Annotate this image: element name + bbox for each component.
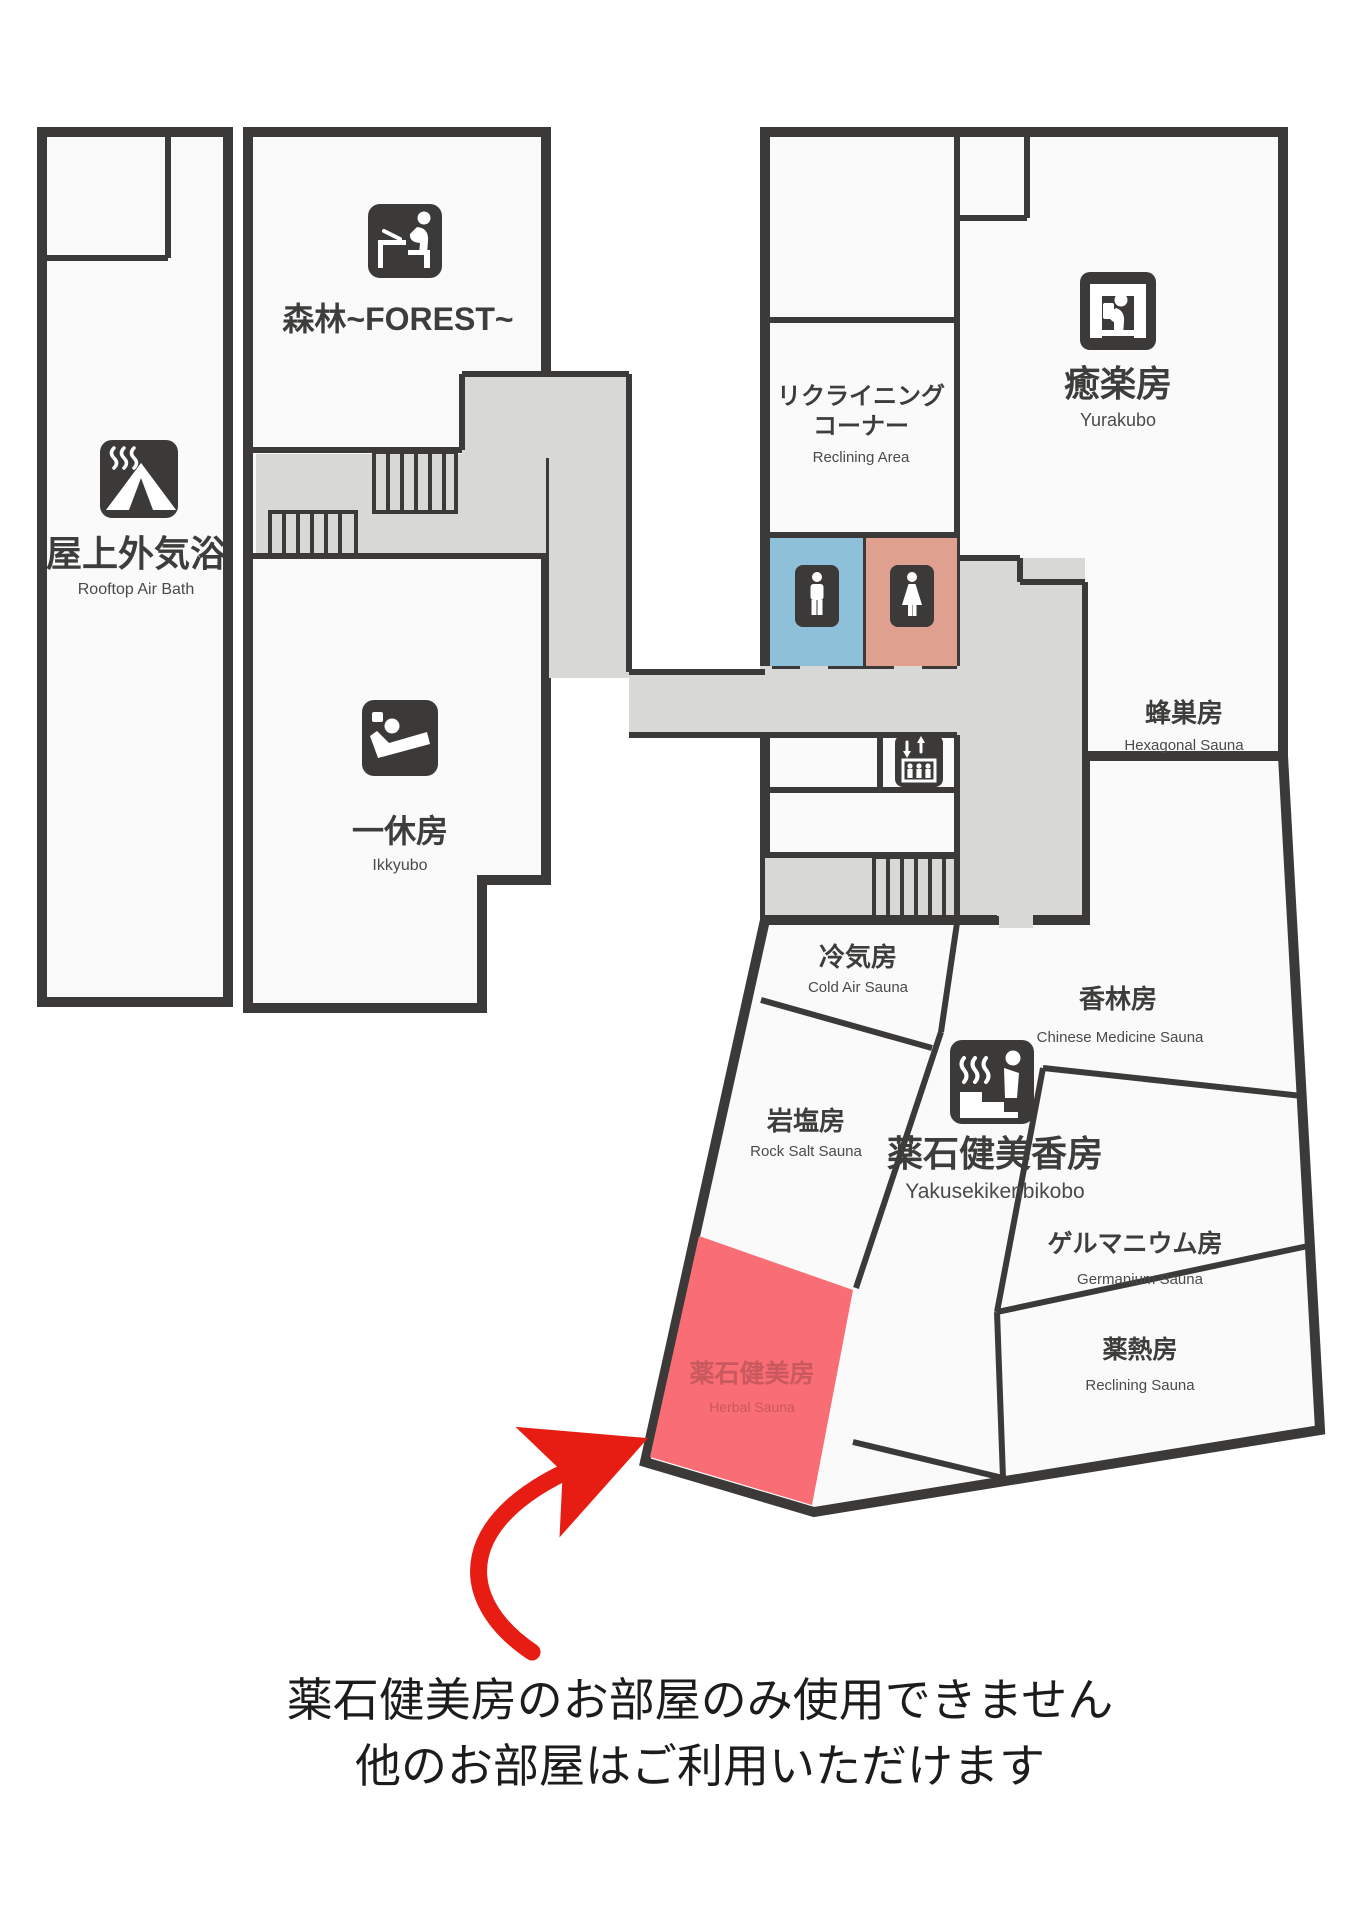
label-hexagonal-en: Hexagonal Sauna [1124, 737, 1244, 754]
label-chinese-medicine-jp: 香林房 [1079, 984, 1157, 1014]
label-ikkyubo-jp: 一休房 [352, 813, 448, 849]
corridor-vertical-connector [549, 452, 629, 678]
corridor-main-east [760, 666, 957, 735]
label-reclining-corner-jp2: コーナー [813, 413, 909, 440]
elevator-icon [895, 735, 943, 787]
reading-person-icon [1080, 272, 1156, 350]
sauna-bench-icon [950, 1040, 1034, 1124]
label-herbal-en: Herbal Sauna [709, 1399, 795, 1415]
label-reclining-corner-en: Reclining Area [813, 449, 910, 466]
label-yurakubo-jp: 癒楽房 [1064, 363, 1172, 404]
label-hexagonal-jp: 蜂巣房 [1145, 698, 1223, 728]
stairs-upper [374, 452, 456, 512]
label-forest-jp: 森林~FOREST~ [282, 301, 513, 337]
label-rooftop-en: Rooftop Air Bath [78, 581, 195, 598]
desk-person-icon [368, 204, 442, 278]
floor-map-svg: 屋上外気浴 Rooftop Air Bath 森林~FOREST~ 一休房 Ik… [0, 0, 1357, 1920]
label-yakunetsu-en: Reclining Sauna [1085, 1377, 1195, 1394]
label-reclining-corner-jp1: リクライニング [777, 383, 945, 410]
male-icon [795, 565, 839, 627]
note-line-1: 薬石健美房のお部屋のみ使用できません [287, 1674, 1114, 1726]
corridor-column [957, 558, 1085, 916]
label-rock-salt-en: Rock Salt Sauna [750, 1143, 862, 1160]
label-yakunetsu-jp: 薬熱房 [1102, 1335, 1177, 1364]
label-rock-salt-jp: 岩塩房 [766, 1106, 845, 1136]
label-yurakubo-en: Yurakubo [1080, 410, 1156, 430]
corridor-main-west [629, 672, 769, 732]
corridor-step-landing [462, 374, 629, 458]
pointer-arrow [479, 1462, 588, 1652]
floor-map-page: 屋上外気浴 Rooftop Air Bath 森林~FOREST~ 一休房 Ik… [0, 0, 1357, 1920]
label-yakusekikenbikobo-en: Yakusekikenbikobo [905, 1180, 1084, 1203]
note-line-2: 他のお部屋はご利用いただけます [355, 1740, 1045, 1792]
label-germanium-en: Germanium Sauna [1077, 1271, 1204, 1288]
label-chinese-medicine-en: Chinese Medicine Sauna [1037, 1029, 1204, 1046]
tent-steam-icon [100, 440, 178, 518]
label-cold-air-en: Cold Air Sauna [808, 979, 909, 996]
female-icon [890, 565, 934, 627]
label-herbal-jp: 薬石健美房 [689, 1359, 814, 1388]
door-gap-lower-building [999, 910, 1033, 928]
stairs-lower-left [270, 512, 356, 556]
label-ikkyubo-en: Ikkyubo [372, 857, 427, 874]
reclining-person-icon [362, 700, 438, 776]
label-yakusekikenbikobo-jp: 薬石健美香房 [887, 1133, 1103, 1174]
label-cold-air-jp: 冷気房 [819, 942, 897, 972]
label-germanium-jp: ゲルマニウム房 [1047, 1229, 1222, 1258]
stairs-south [874, 857, 957, 917]
label-rooftop-jp: 屋上外気浴 [46, 533, 227, 574]
